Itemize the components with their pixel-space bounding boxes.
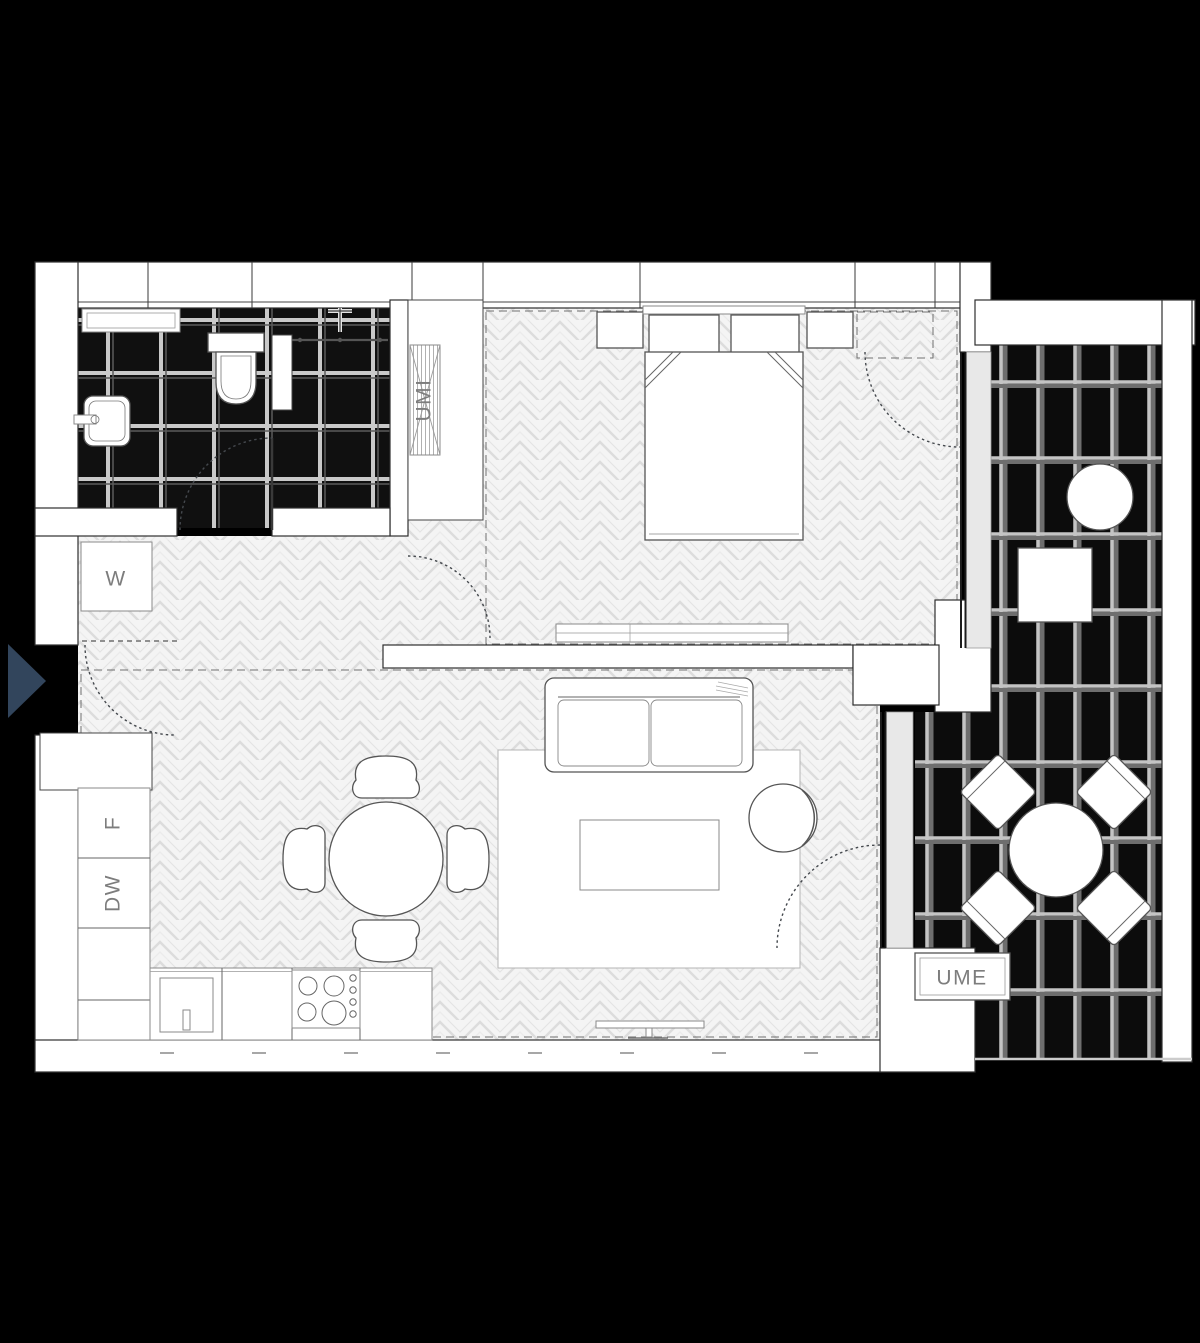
- shower-glass-hinge: [378, 338, 382, 342]
- toilet: [216, 352, 256, 404]
- balcony-stool: [1018, 548, 1092, 622]
- wall-left-upper: [35, 262, 78, 645]
- tv: [596, 1021, 704, 1028]
- entry-wall-stub: [40, 733, 152, 790]
- nightstand-left: [597, 312, 643, 348]
- kitchen-faucet: [183, 1010, 190, 1030]
- vanity-cabinet: [82, 309, 180, 332]
- dining-chair: [283, 826, 325, 893]
- wall-bathroom-south-left: [35, 508, 177, 536]
- ume-label: UME: [936, 967, 987, 990]
- dining-chair: [353, 756, 420, 798]
- wall-bedroom-south: [383, 645, 853, 668]
- wardrobe-umi: UMI: [410, 345, 440, 455]
- wall-column-corner: [853, 645, 939, 705]
- dining-chair: [447, 826, 489, 893]
- balcony-wall-right: [1162, 300, 1192, 1062]
- dining-chair: [353, 920, 420, 962]
- wall-shower-divider: [272, 335, 292, 410]
- washer-label: W: [105, 568, 126, 591]
- balcony-side-table: [1067, 464, 1133, 530]
- dining-table: [329, 802, 443, 916]
- shower-glass-hinge: [298, 338, 302, 342]
- wall-top: [35, 262, 990, 308]
- wall-bathroom-right: [390, 300, 408, 536]
- living-window-frame: [886, 712, 913, 948]
- wardrobe-label: UMI: [413, 379, 436, 422]
- corridor-floor: [408, 520, 483, 550]
- nightstand-right: [807, 312, 853, 348]
- bed-headboard: [643, 306, 805, 314]
- tv-stand: [646, 1028, 652, 1037]
- fridge-label: F: [102, 816, 125, 830]
- shower-glass-hinge: [338, 338, 342, 342]
- dishwasher-label: DW: [102, 874, 125, 912]
- coffee-table: [580, 820, 719, 890]
- balcony-dining-table: [1009, 803, 1103, 897]
- toilet-tank: [208, 333, 264, 352]
- floor-plan-svg: UMI W F DW: [0, 0, 1200, 1343]
- bed: [645, 352, 803, 540]
- bedroom-window-frame: [966, 352, 991, 648]
- wall-bottom: [35, 1040, 975, 1072]
- wall-bathroom-south-right: [272, 508, 390, 536]
